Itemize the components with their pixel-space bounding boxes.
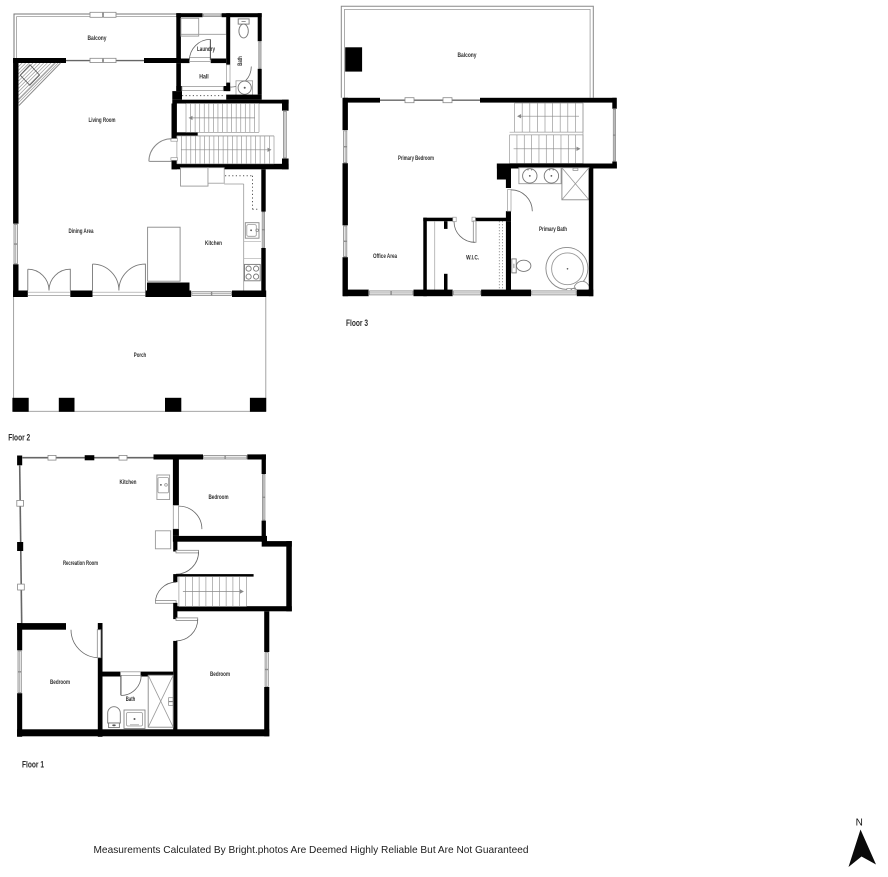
svg-text:Bedroom: Bedroom xyxy=(209,494,229,501)
svg-text:Office Area: Office Area xyxy=(373,253,397,260)
svg-text:Laundry: Laundry xyxy=(197,46,215,53)
svg-text:Primary Bedroom: Primary Bedroom xyxy=(398,155,434,162)
svg-text:Floor 3: Floor 3 xyxy=(346,318,368,328)
svg-text:N: N xyxy=(856,818,863,829)
svg-text:Recreation Room: Recreation Room xyxy=(63,560,98,567)
svg-text:Kitchen: Kitchen xyxy=(205,240,222,247)
svg-text:Floor 2: Floor 2 xyxy=(8,432,30,442)
svg-text:W.I.C.: W.I.C. xyxy=(466,254,479,261)
svg-text:Floor 1: Floor 1 xyxy=(22,759,44,769)
svg-text:Bath: Bath xyxy=(237,56,244,66)
svg-text:Balcony: Balcony xyxy=(88,35,107,42)
svg-text:Porch: Porch xyxy=(134,352,147,359)
svg-text:Dining Area: Dining Area xyxy=(69,228,94,235)
svg-text:Measurements Calculated By Bri: Measurements Calculated By Bright.photos… xyxy=(94,844,529,856)
svg-text:Kitchen: Kitchen xyxy=(120,479,137,486)
svg-text:Primary Bath: Primary Bath xyxy=(539,226,567,233)
svg-text:Balcony: Balcony xyxy=(458,52,477,59)
svg-text:Bath: Bath xyxy=(126,696,136,703)
svg-text:Hall: Hall xyxy=(199,74,209,81)
svg-text:Bedroom: Bedroom xyxy=(50,679,70,686)
svg-text:Living Room: Living Room xyxy=(89,117,116,124)
svg-text:Bedroom: Bedroom xyxy=(210,671,230,678)
